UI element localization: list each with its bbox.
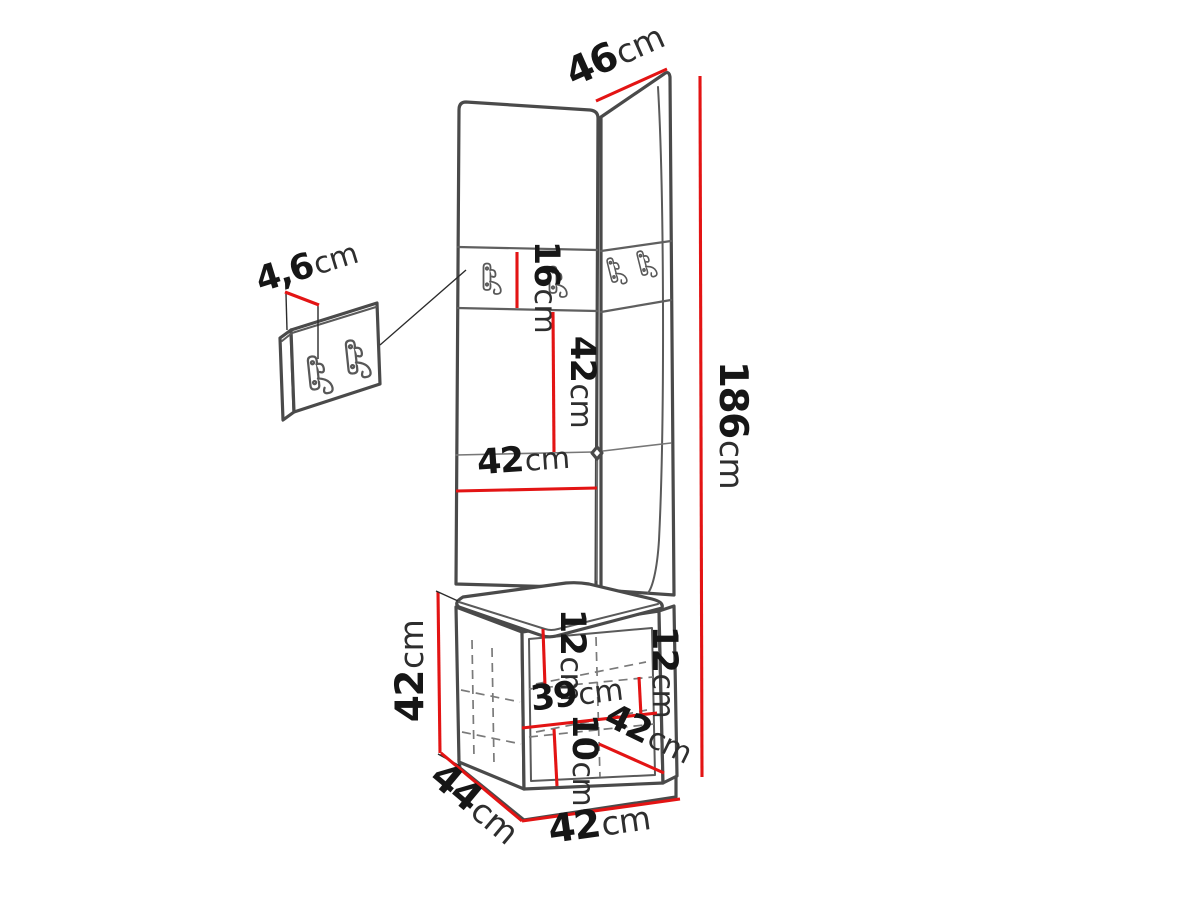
dimension-line	[285, 292, 319, 305]
hook-rail-detail	[280, 294, 380, 420]
diagram-canvas: 46cm 186cm 16cm 42cm 42cm	[0, 0, 1200, 899]
cabinet-left-side	[456, 607, 524, 789]
dim-bench-height: 42cm	[388, 591, 460, 766]
extension-line	[286, 294, 287, 330]
dimension-line	[700, 76, 702, 777]
callout-line	[380, 270, 466, 345]
dim-height: 186cm	[700, 76, 755, 777]
main-unit	[456, 73, 674, 595]
dim-label-bench-height: 42cm	[388, 620, 433, 723]
dimension-line	[438, 592, 440, 753]
seam-button-diamond	[592, 447, 602, 459]
dimension-diagram: 46cm 186cm 16cm 42cm 42cm	[0, 0, 1200, 899]
dim-label-height: 186cm	[710, 361, 755, 489]
dim-rail-thickness: 4,6cm	[251, 232, 362, 305]
dimension-line	[553, 312, 554, 452]
dim-label-rail-thickness: 4,6cm	[251, 232, 362, 301]
